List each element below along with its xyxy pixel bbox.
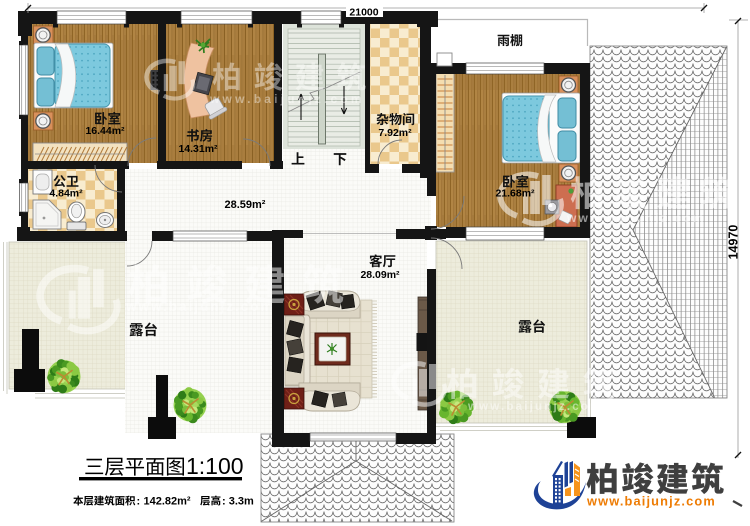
svg-text:: 3.3m: : 3.3m xyxy=(222,496,254,508)
svg-text:28.59m²: 28.59m² xyxy=(225,199,266,211)
svg-text:www.baijunjz.com: www.baijunjz.com xyxy=(467,401,602,413)
svg-text:21.68m²: 21.68m² xyxy=(495,188,535,200)
svg-text:7.92m²: 7.92m² xyxy=(378,127,412,139)
svg-text::: : xyxy=(137,496,141,508)
svg-text:www.baijunjz.com: www.baijunjz.com xyxy=(586,494,716,509)
svg-text:www.baijunjz.com: www.baijunjz.com xyxy=(209,92,365,106)
svg-text:142.82m²: 142.82m² xyxy=(144,496,191,508)
svg-text:www.baijunjz.com: www.baijunjz.com xyxy=(566,211,706,225)
svg-text:16.44m²: 16.44m² xyxy=(85,125,125,137)
svg-text:14970: 14970 xyxy=(727,225,741,260)
svg-text:28.09m²: 28.09m² xyxy=(360,269,400,281)
svg-text:1:100: 1:100 xyxy=(186,453,244,479)
svg-text:14.31m²: 14.31m² xyxy=(178,143,218,155)
svg-text:www.baijunjz.com: www.baijunjz.com xyxy=(125,299,275,314)
svg-text:4.84m²: 4.84m² xyxy=(49,188,83,200)
svg-text:21000: 21000 xyxy=(349,7,378,19)
